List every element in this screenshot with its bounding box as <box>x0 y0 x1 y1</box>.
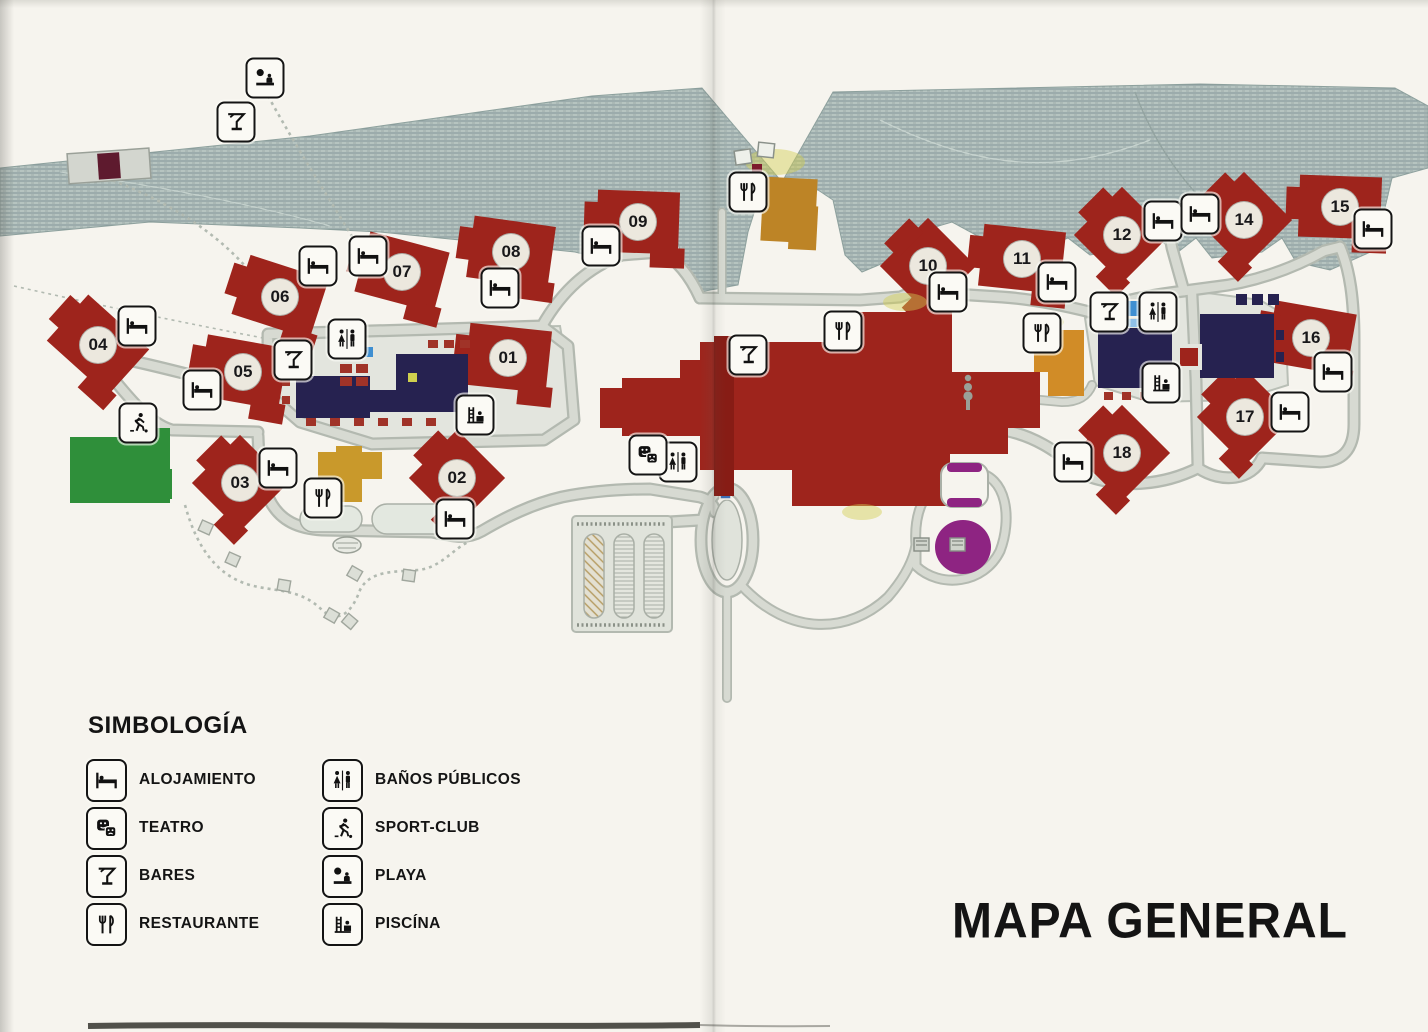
fork-knife-icon <box>824 311 863 352</box>
martini-icon <box>217 102 256 143</box>
bed-icon <box>259 448 298 489</box>
bed-icon <box>299 246 338 287</box>
martini-icon <box>86 855 127 898</box>
bed-icon <box>349 236 388 277</box>
legend-grid: ALOJAMIENTO TEATRO BARES RESTAURANTE BAÑ… <box>86 756 726 948</box>
playa-icon <box>322 855 363 898</box>
theater-icon <box>629 435 668 476</box>
bed-icon <box>86 759 127 802</box>
building-number-02: 02 <box>438 459 476 497</box>
legend-label: BAÑOS PÚBLICOS <box>375 771 521 789</box>
map-title: MAPA GENERAL <box>870 893 1428 950</box>
bed-icon <box>183 370 222 411</box>
piscina-icon <box>1142 363 1181 404</box>
bed-icon <box>1144 201 1183 242</box>
bed-icon <box>582 226 621 267</box>
sport-icon <box>322 807 363 850</box>
martini-icon <box>729 335 768 376</box>
legend-item-piscina: PISCÍNA <box>322 900 726 948</box>
building-number-03: 03 <box>221 464 259 502</box>
playa-icon <box>246 58 285 99</box>
martini-icon <box>1090 292 1129 333</box>
bed-icon <box>929 272 968 313</box>
legend-item-bares: BARES <box>86 852 322 900</box>
fork-knife-icon <box>86 903 127 946</box>
building-number-06: 06 <box>261 278 299 316</box>
legend-item-alojamiento: ALOJAMIENTO <box>86 756 322 804</box>
sport-icon <box>119 403 158 444</box>
fork-knife-icon <box>1023 313 1062 354</box>
building-number-05: 05 <box>224 353 262 391</box>
piscina-icon <box>456 395 495 436</box>
legend-item-sport-club: SPORT-CLUB <box>322 804 726 852</box>
legend: SIMBOLOGÍA ALOJAMIENTO TEATRO BARES REST… <box>86 712 726 948</box>
building-number-12: 12 <box>1103 216 1141 254</box>
building-number-08: 08 <box>492 233 530 271</box>
building-number-01: 01 <box>489 339 527 377</box>
map-document: 0102030405060708091011121415161718 SIMBO… <box>0 0 1428 1032</box>
legend-item-restaurante: RESTAURANTE <box>86 900 322 948</box>
bed-icon <box>1271 392 1310 433</box>
building-number-17: 17 <box>1226 398 1264 436</box>
bed-icon <box>1181 194 1220 235</box>
legend-item-banos-publicos: BAÑOS PÚBLICOS <box>322 756 726 804</box>
building-number-14: 14 <box>1225 201 1263 239</box>
martini-icon <box>274 340 313 381</box>
bed-icon <box>1314 352 1353 393</box>
building-number-11: 11 <box>1003 240 1041 278</box>
legend-label: RESTAURANTE <box>139 915 259 933</box>
bed-icon <box>1054 442 1093 483</box>
bed-icon <box>118 306 157 347</box>
piscina-icon <box>322 903 363 946</box>
wc-icon <box>328 319 367 360</box>
bed-icon <box>1354 209 1393 250</box>
wc-icon <box>1139 292 1178 333</box>
bed-icon <box>481 268 520 309</box>
wc-icon <box>322 759 363 802</box>
building-number-18: 18 <box>1103 434 1141 472</box>
legend-label: PISCÍNA <box>375 915 441 933</box>
fork-knife-icon <box>729 172 768 213</box>
building-number-04: 04 <box>79 326 117 364</box>
bed-icon <box>1038 262 1077 303</box>
building-number-09: 09 <box>619 203 657 241</box>
building-number-07: 07 <box>383 253 421 291</box>
legend-item-playa: PLAYA <box>322 852 726 900</box>
legend-label: SPORT-CLUB <box>375 819 480 837</box>
bed-icon <box>436 499 475 540</box>
fork-knife-icon <box>304 478 343 519</box>
legend-label: PLAYA <box>375 867 427 885</box>
legend-label: BARES <box>139 867 195 885</box>
legend-title: SIMBOLOGÍA <box>88 712 726 740</box>
legend-item-teatro: TEATRO <box>86 804 322 852</box>
theater-icon <box>86 807 127 850</box>
legend-label: TEATRO <box>139 819 204 837</box>
legend-label: ALOJAMIENTO <box>139 771 256 789</box>
